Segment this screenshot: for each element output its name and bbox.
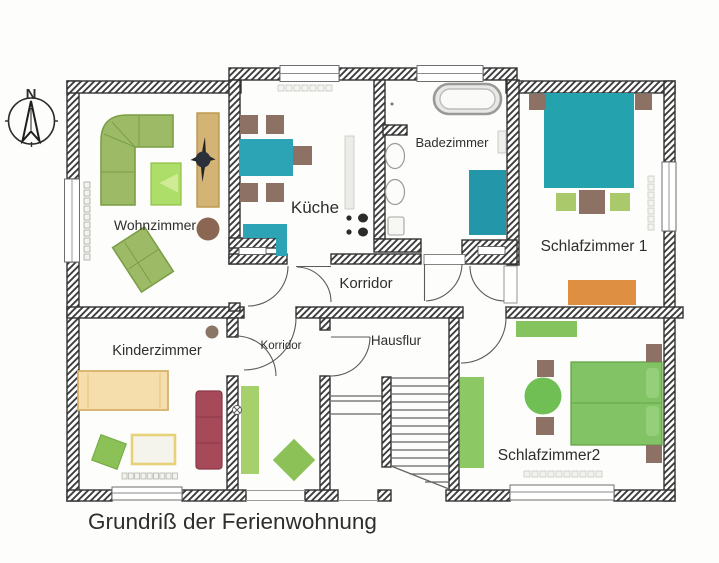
svg-text:Küche: Küche xyxy=(291,198,339,217)
svg-text:Kinderzimmer: Kinderzimmer xyxy=(112,343,202,359)
svg-text:Badezimmer: Badezimmer xyxy=(416,135,490,150)
svg-text:Schlafzimmer 1: Schlafzimmer 1 xyxy=(541,238,648,255)
svg-text:Korridor: Korridor xyxy=(261,340,302,352)
svg-text:N: N xyxy=(26,86,37,103)
svg-text:Hausflur: Hausflur xyxy=(371,333,422,348)
svg-text:Korridor: Korridor xyxy=(339,275,392,292)
svg-text:Wohnzimmer: Wohnzimmer xyxy=(114,217,197,233)
svg-text:Schlafzimmer2: Schlafzimmer2 xyxy=(498,447,601,464)
svg-text:Grundriß der Ferienwohnung: Grundriß der Ferienwohnung xyxy=(88,509,377,534)
